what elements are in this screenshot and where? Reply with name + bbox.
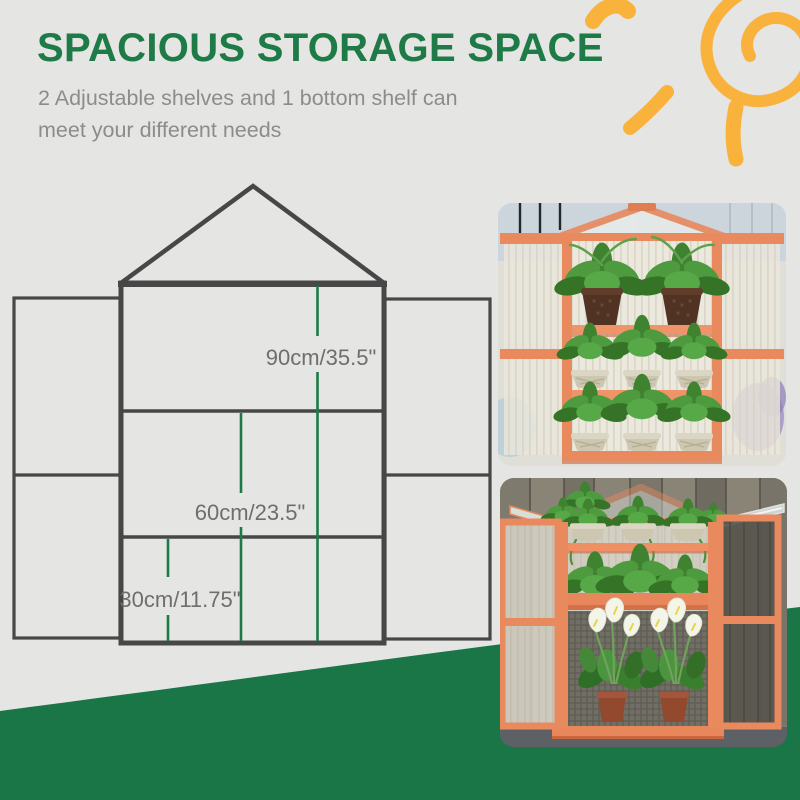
header: SPACIOUS STORAGE SPACE 2 Adjustable shel… xyxy=(37,26,637,146)
sun-spiral xyxy=(707,0,800,101)
sun-ray-icon xyxy=(593,6,628,21)
page-title: SPACIOUS STORAGE SPACE xyxy=(37,26,637,71)
product-photo-open xyxy=(500,478,787,747)
left-door-wing xyxy=(14,298,120,638)
right-side-panel xyxy=(722,233,784,455)
open-door-right xyxy=(720,518,778,726)
subtitle: 2 Adjustable shelves and 1 bottom shelf … xyxy=(38,82,637,147)
dimension-label-60cm: 60cm/23.5" xyxy=(195,500,306,525)
floor-board xyxy=(562,451,722,461)
product-photo-closed xyxy=(498,203,786,466)
middle-shelf-board xyxy=(558,593,718,610)
subtitle-line-2: meet your different needs xyxy=(38,118,281,142)
marketing-banner: SPACIOUS STORAGE SPACE 2 Adjustable shel… xyxy=(0,0,800,800)
sun-ray-icon xyxy=(733,107,736,159)
roof-outline xyxy=(121,186,384,283)
open-door-left xyxy=(502,522,558,726)
dimension-label-90cm: 90cm/35.5" xyxy=(266,345,377,370)
right-door-wing xyxy=(385,299,490,639)
subtitle-line-1: 2 Adjustable shelves and 1 bottom shelf … xyxy=(38,86,458,110)
left-side-panel xyxy=(500,233,562,455)
dimension-diagram: 90cm/35.5" 60cm/23.5" 30cm/11.75" xyxy=(0,180,500,660)
